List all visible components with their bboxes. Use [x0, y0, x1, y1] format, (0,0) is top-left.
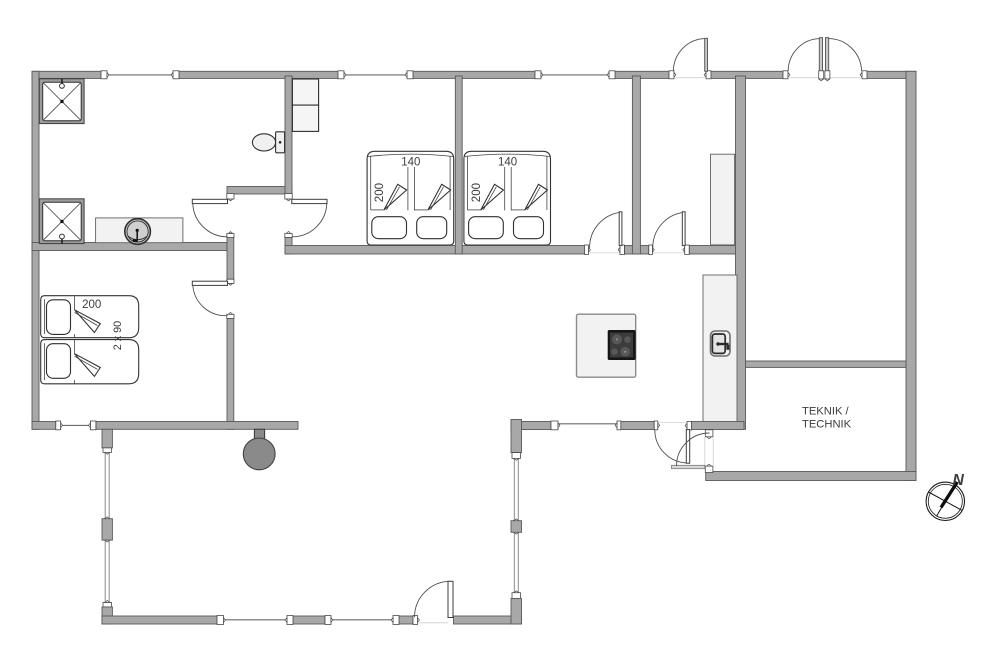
svg-text:200: 200 [374, 183, 386, 202]
svg-text:200: 200 [471, 183, 483, 202]
svg-text:2 x 90: 2 x 90 [112, 321, 124, 350]
svg-text:200: 200 [82, 299, 101, 311]
svg-text:140: 140 [498, 157, 517, 169]
svg-text:N: N [953, 472, 965, 489]
svg-text:TECHNIK: TECHNIK [802, 419, 852, 431]
svg-text:140: 140 [401, 157, 420, 169]
svg-text:TEKNIK /: TEKNIK / [802, 405, 850, 417]
